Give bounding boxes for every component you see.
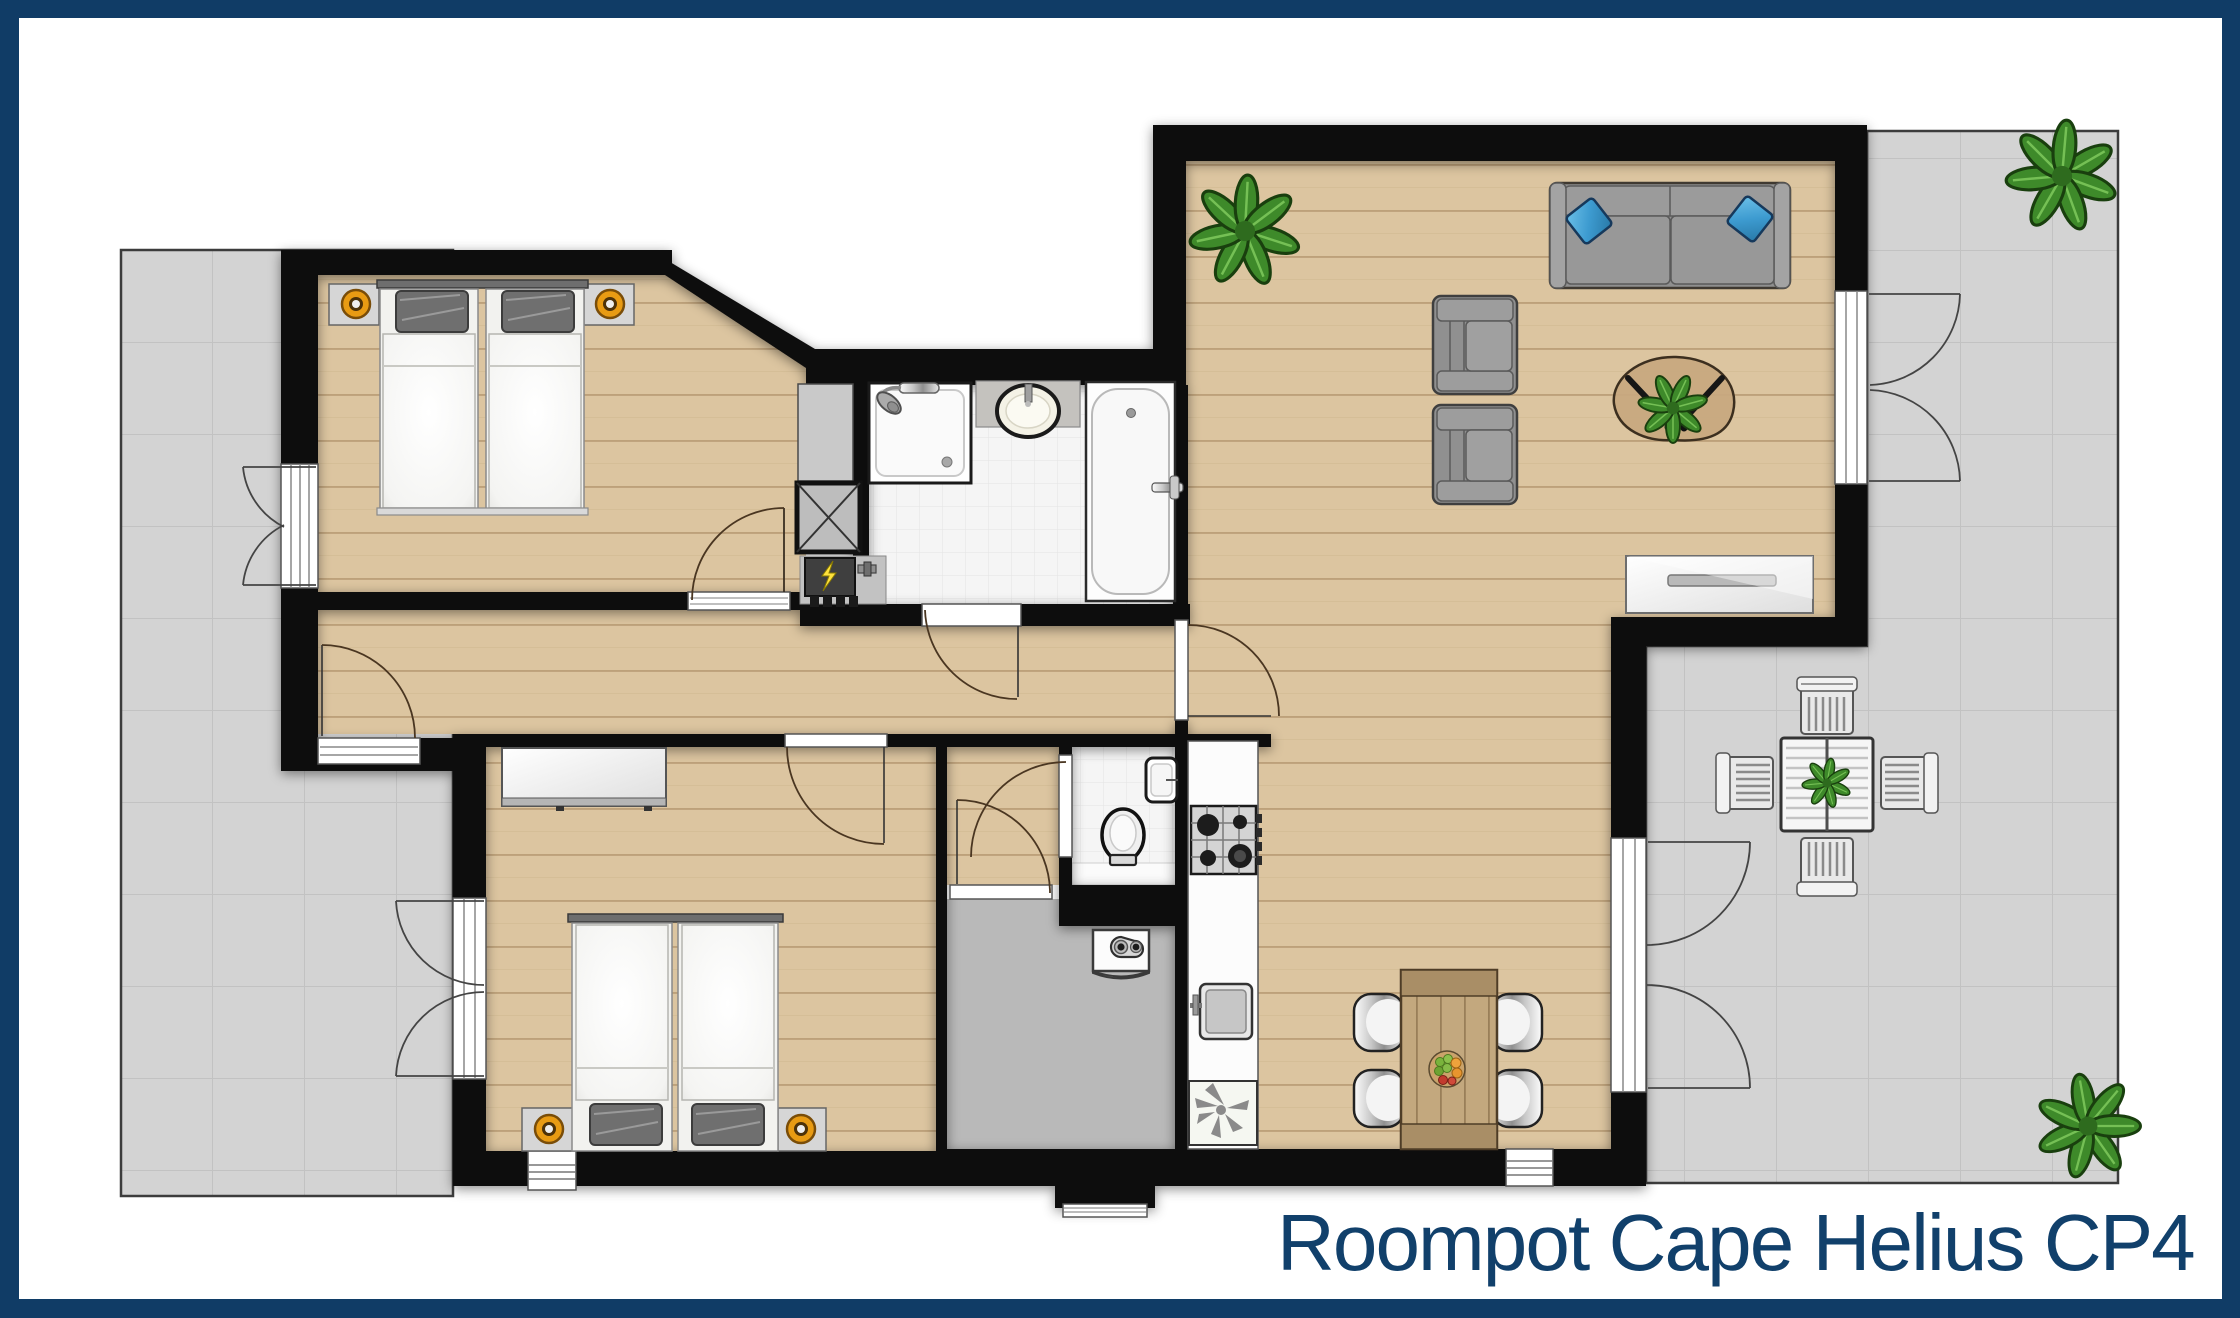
svg-text:Roompot Cape Helius CP4: Roompot Cape Helius CP4: [1277, 1198, 2194, 1287]
